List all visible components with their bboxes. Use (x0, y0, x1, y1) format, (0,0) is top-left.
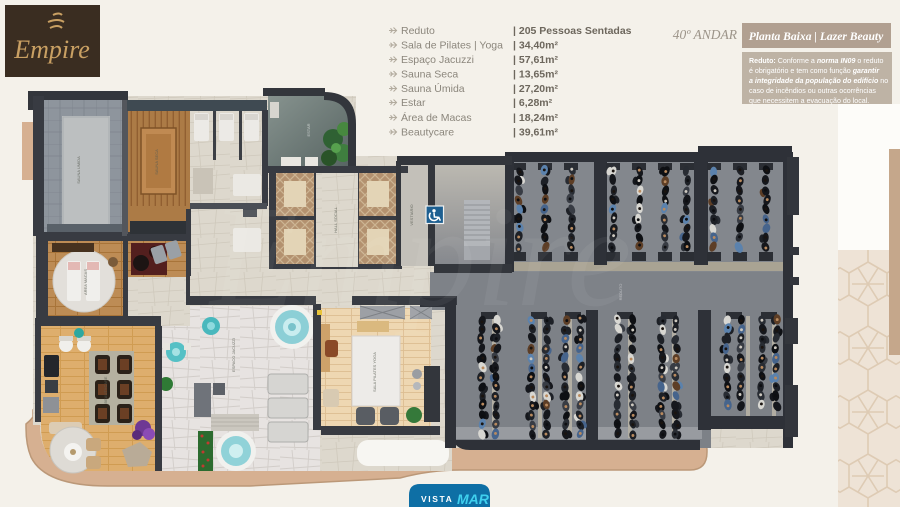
svg-text:Reduto: Conforme a norma IN09: Reduto: Conforme a norma IN09 o reduto (749, 57, 884, 65)
svg-text:VISTA: VISTA (421, 494, 453, 504)
svg-text:SAUNA UMIDA: SAUNA UMIDA (76, 156, 81, 184)
svg-text:| 34,40m²: | 34,40m² (513, 40, 558, 52)
svg-text:Sauna Seca: Sauna Seca (401, 69, 458, 81)
svg-text:caso de incêndios ou outras oc: caso de incêndios ou outras ocorrências (749, 87, 876, 95)
svg-text:| 6,28m²: | 6,28m² (513, 97, 553, 109)
svg-text:| 18,24m²: | 18,24m² (513, 112, 558, 124)
svg-text:Empire: Empire (13, 35, 90, 64)
svg-text:Beautycare: Beautycare (401, 127, 454, 139)
svg-text:Espaço Jacuzzi: Espaço Jacuzzi (401, 54, 474, 66)
svg-text:é obrigatório e tem como funçã: é obrigatório e tem como função garantir (749, 67, 880, 75)
svg-text:Estar: Estar (401, 97, 426, 109)
svg-text:AREA MACAS: AREA MACAS (83, 269, 88, 295)
svg-text:| 13,65m²: | 13,65m² (513, 69, 558, 81)
svg-text:40º ANDAR: 40º ANDAR (673, 27, 738, 42)
svg-text:Planta Baixa | Lazer Beauty: Planta Baixa | Lazer Beauty (749, 30, 884, 43)
svg-text:| 205 Pessoas Sentadas: | 205 Pessoas Sentadas (513, 25, 632, 37)
svg-text:ESPACO JACUZZI: ESPACO JACUZZI (231, 338, 236, 372)
svg-text:BEAUTYCARE: BEAUTYCARE (103, 376, 108, 403)
svg-text:Sauna Úmida: Sauna Úmida (401, 82, 465, 95)
svg-text:Área de Macas: Área de Macas (401, 111, 472, 124)
svg-text:que necessitem a evacuação do: que necessitem a evacuação do local. (749, 97, 869, 105)
svg-text:| 39,61m²: | 39,61m² (513, 127, 558, 139)
svg-text:ESTAR: ESTAR (306, 123, 311, 136)
svg-text:Reduto: Reduto (401, 25, 435, 37)
svg-text:a integridade da população do: a integridade da população do edifício n… (749, 77, 888, 85)
svg-text:Empire: Empire (208, 177, 631, 337)
svg-text:SAUNA SECA: SAUNA SECA (154, 149, 159, 175)
svg-text:| 27,20m²: | 27,20m² (513, 83, 558, 95)
svg-text:SALA PILATES YOGA: SALA PILATES YOGA (372, 352, 377, 392)
svg-text:Sala de Pilates | Yoga: Sala de Pilates | Yoga (401, 40, 503, 52)
svg-text:MAR: MAR (457, 491, 490, 507)
svg-text:| 57,61m²: | 57,61m² (513, 54, 558, 66)
